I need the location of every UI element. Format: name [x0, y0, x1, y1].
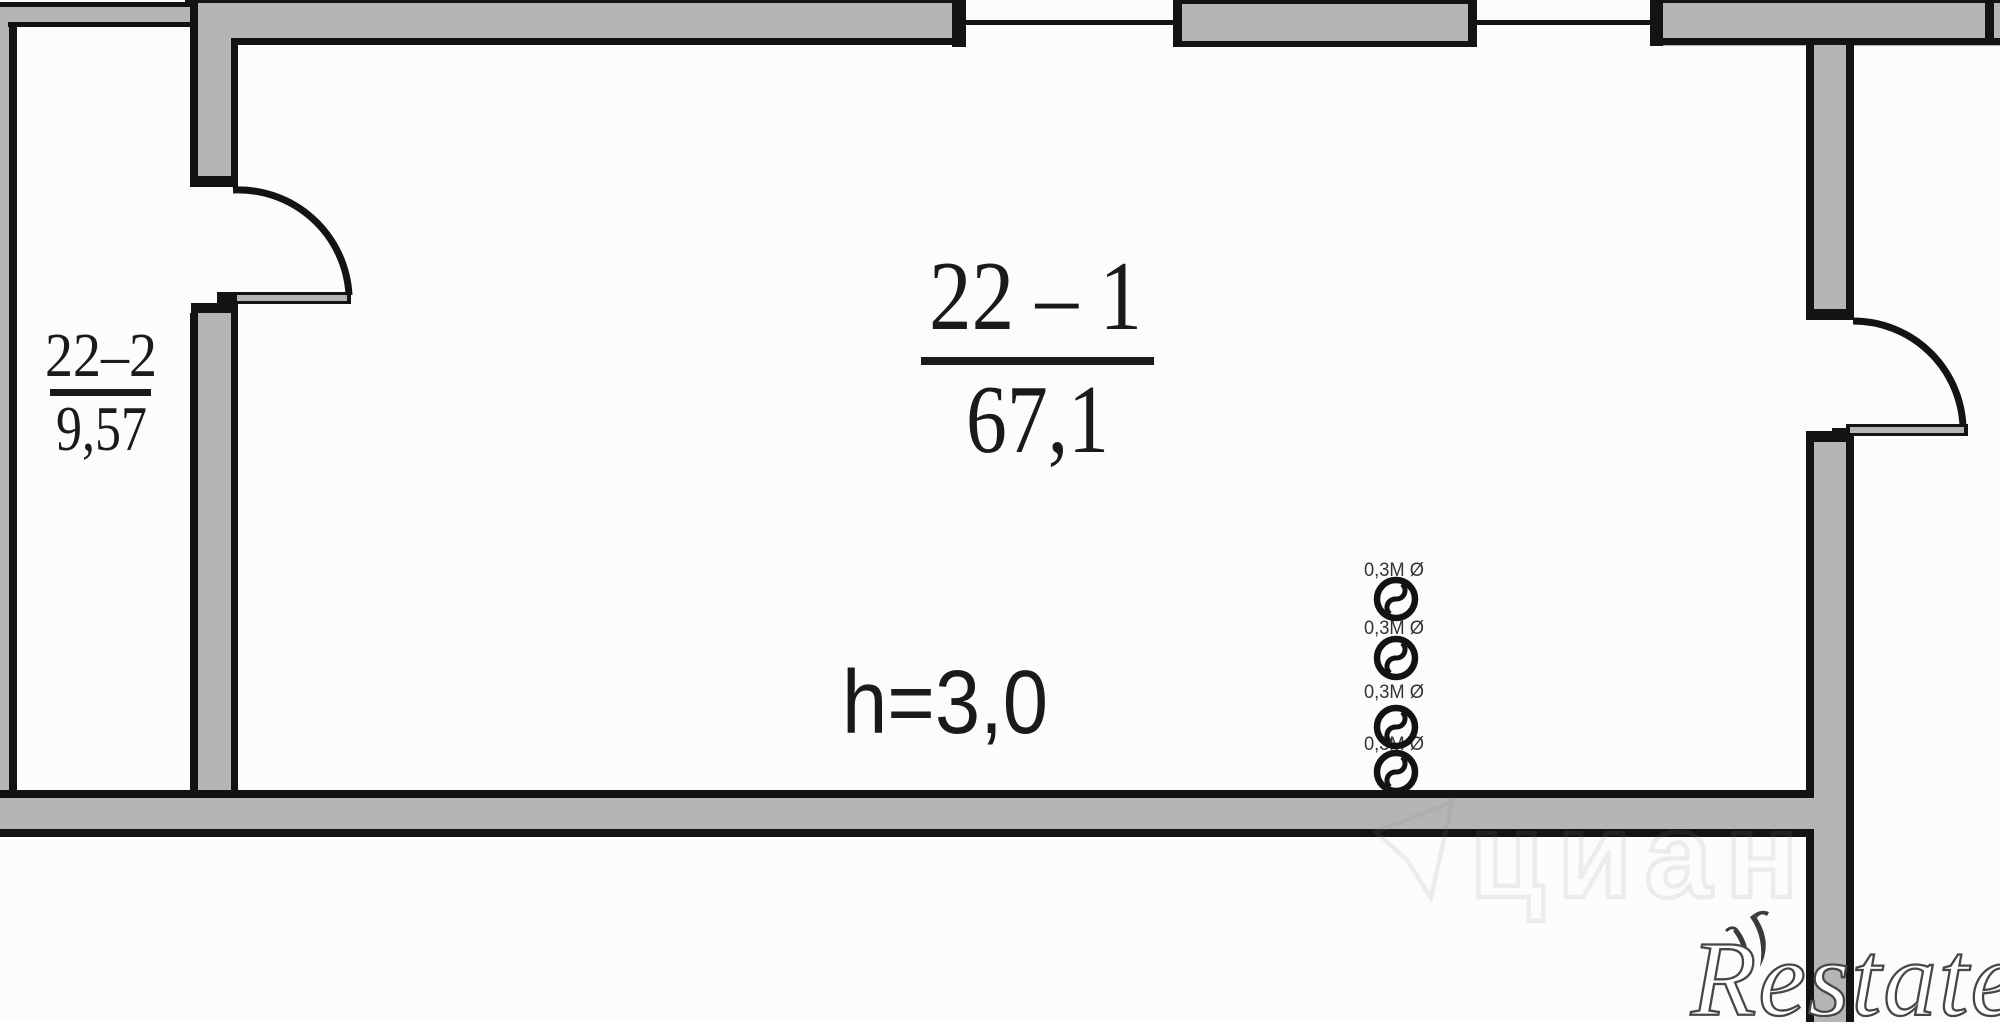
- svg-text:h=3,0: h=3,0: [842, 653, 1048, 753]
- svg-text:0,3М Ø: 0,3М Ø: [1364, 682, 1424, 703]
- svg-text:67,1: 67,1: [966, 366, 1109, 474]
- svg-text:22–2: 22–2: [45, 322, 157, 390]
- svg-text:Restate: Restate: [1690, 921, 2000, 1022]
- svg-text:22 – 1: 22 – 1: [929, 242, 1142, 351]
- svg-text:9,57: 9,57: [56, 394, 147, 464]
- svg-text:циан: циан: [1470, 787, 1811, 923]
